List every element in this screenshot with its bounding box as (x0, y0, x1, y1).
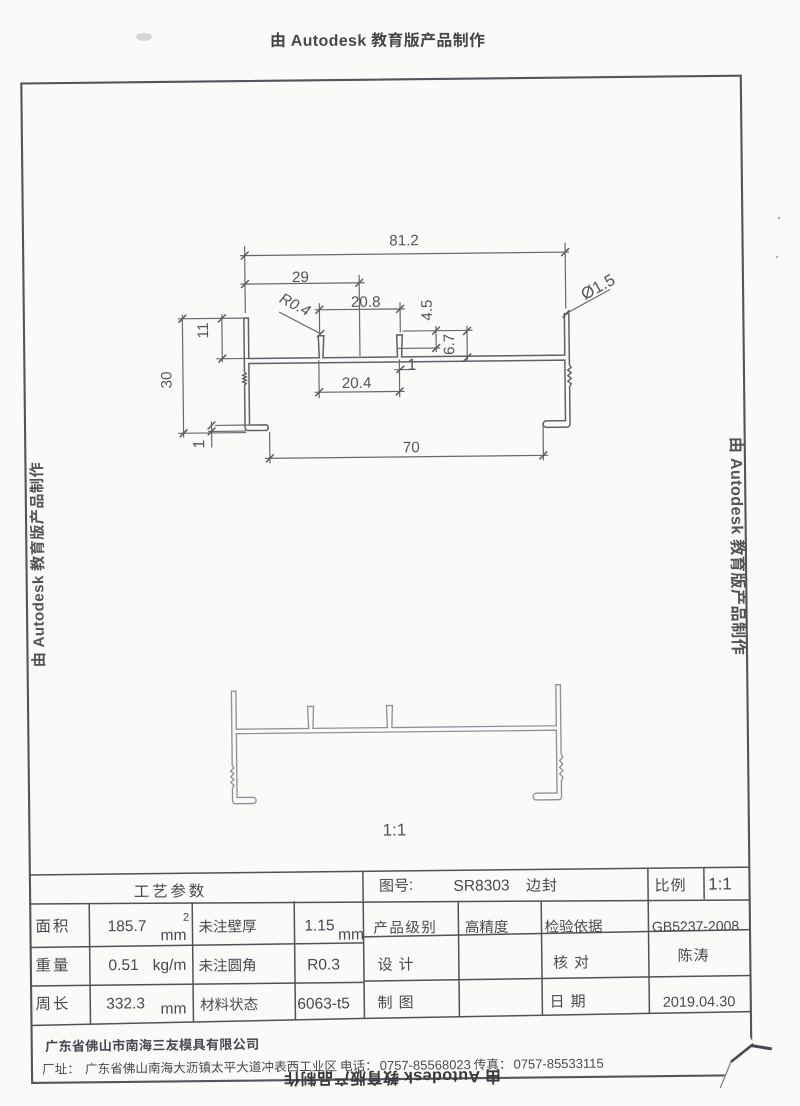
svg-text:1.15: 1.15 (304, 917, 334, 934)
svg-text:6.7: 6.7 (441, 334, 458, 355)
svg-text::: : (409, 877, 413, 894)
svg-text:2: 2 (183, 912, 189, 924)
svg-text:R0.4: R0.4 (277, 290, 313, 320)
svg-text:Ø1.5: Ø1.5 (578, 271, 618, 304)
svg-text:2019.04.30: 2019.04.30 (663, 994, 736, 1011)
svg-text:R0.3: R0.3 (307, 956, 340, 973)
svg-text:GB5237-2008: GB5237-2008 (652, 918, 740, 935)
svg-text:0757-85533115: 0757-85533115 (513, 1056, 603, 1072)
svg-text:1:1: 1:1 (382, 820, 406, 839)
svg-text:20.4: 20.4 (342, 375, 372, 392)
svg-text:mm: mm (338, 926, 364, 943)
svg-text:0.51: 0.51 (108, 957, 138, 974)
svg-text:kg/m: kg/m (153, 957, 187, 974)
svg-text:29: 29 (292, 269, 309, 286)
svg-text:mm: mm (161, 927, 187, 944)
svg-text:1: 1 (407, 357, 416, 374)
svg-text:mm: mm (161, 1000, 187, 1017)
svg-text:1:1: 1:1 (708, 874, 732, 893)
svg-text:185.7: 185.7 (108, 918, 147, 935)
svg-text:SR8303: SR8303 (453, 877, 509, 895)
svg-text:20.8: 20.8 (351, 294, 381, 311)
svg-text:11: 11 (195, 323, 212, 339)
svg-text:30: 30 (158, 371, 175, 388)
svg-text:70: 70 (403, 439, 420, 456)
svg-text:1: 1 (191, 439, 208, 448)
svg-text:4.5: 4.5 (419, 299, 436, 320)
svg-text:81.2: 81.2 (389, 232, 419, 249)
svg-text:6063-t5: 6063-t5 (297, 995, 350, 1013)
svg-text:0757-85568023: 0757-85568023 (380, 1057, 471, 1073)
svg-text:332.3: 332.3 (106, 995, 145, 1012)
